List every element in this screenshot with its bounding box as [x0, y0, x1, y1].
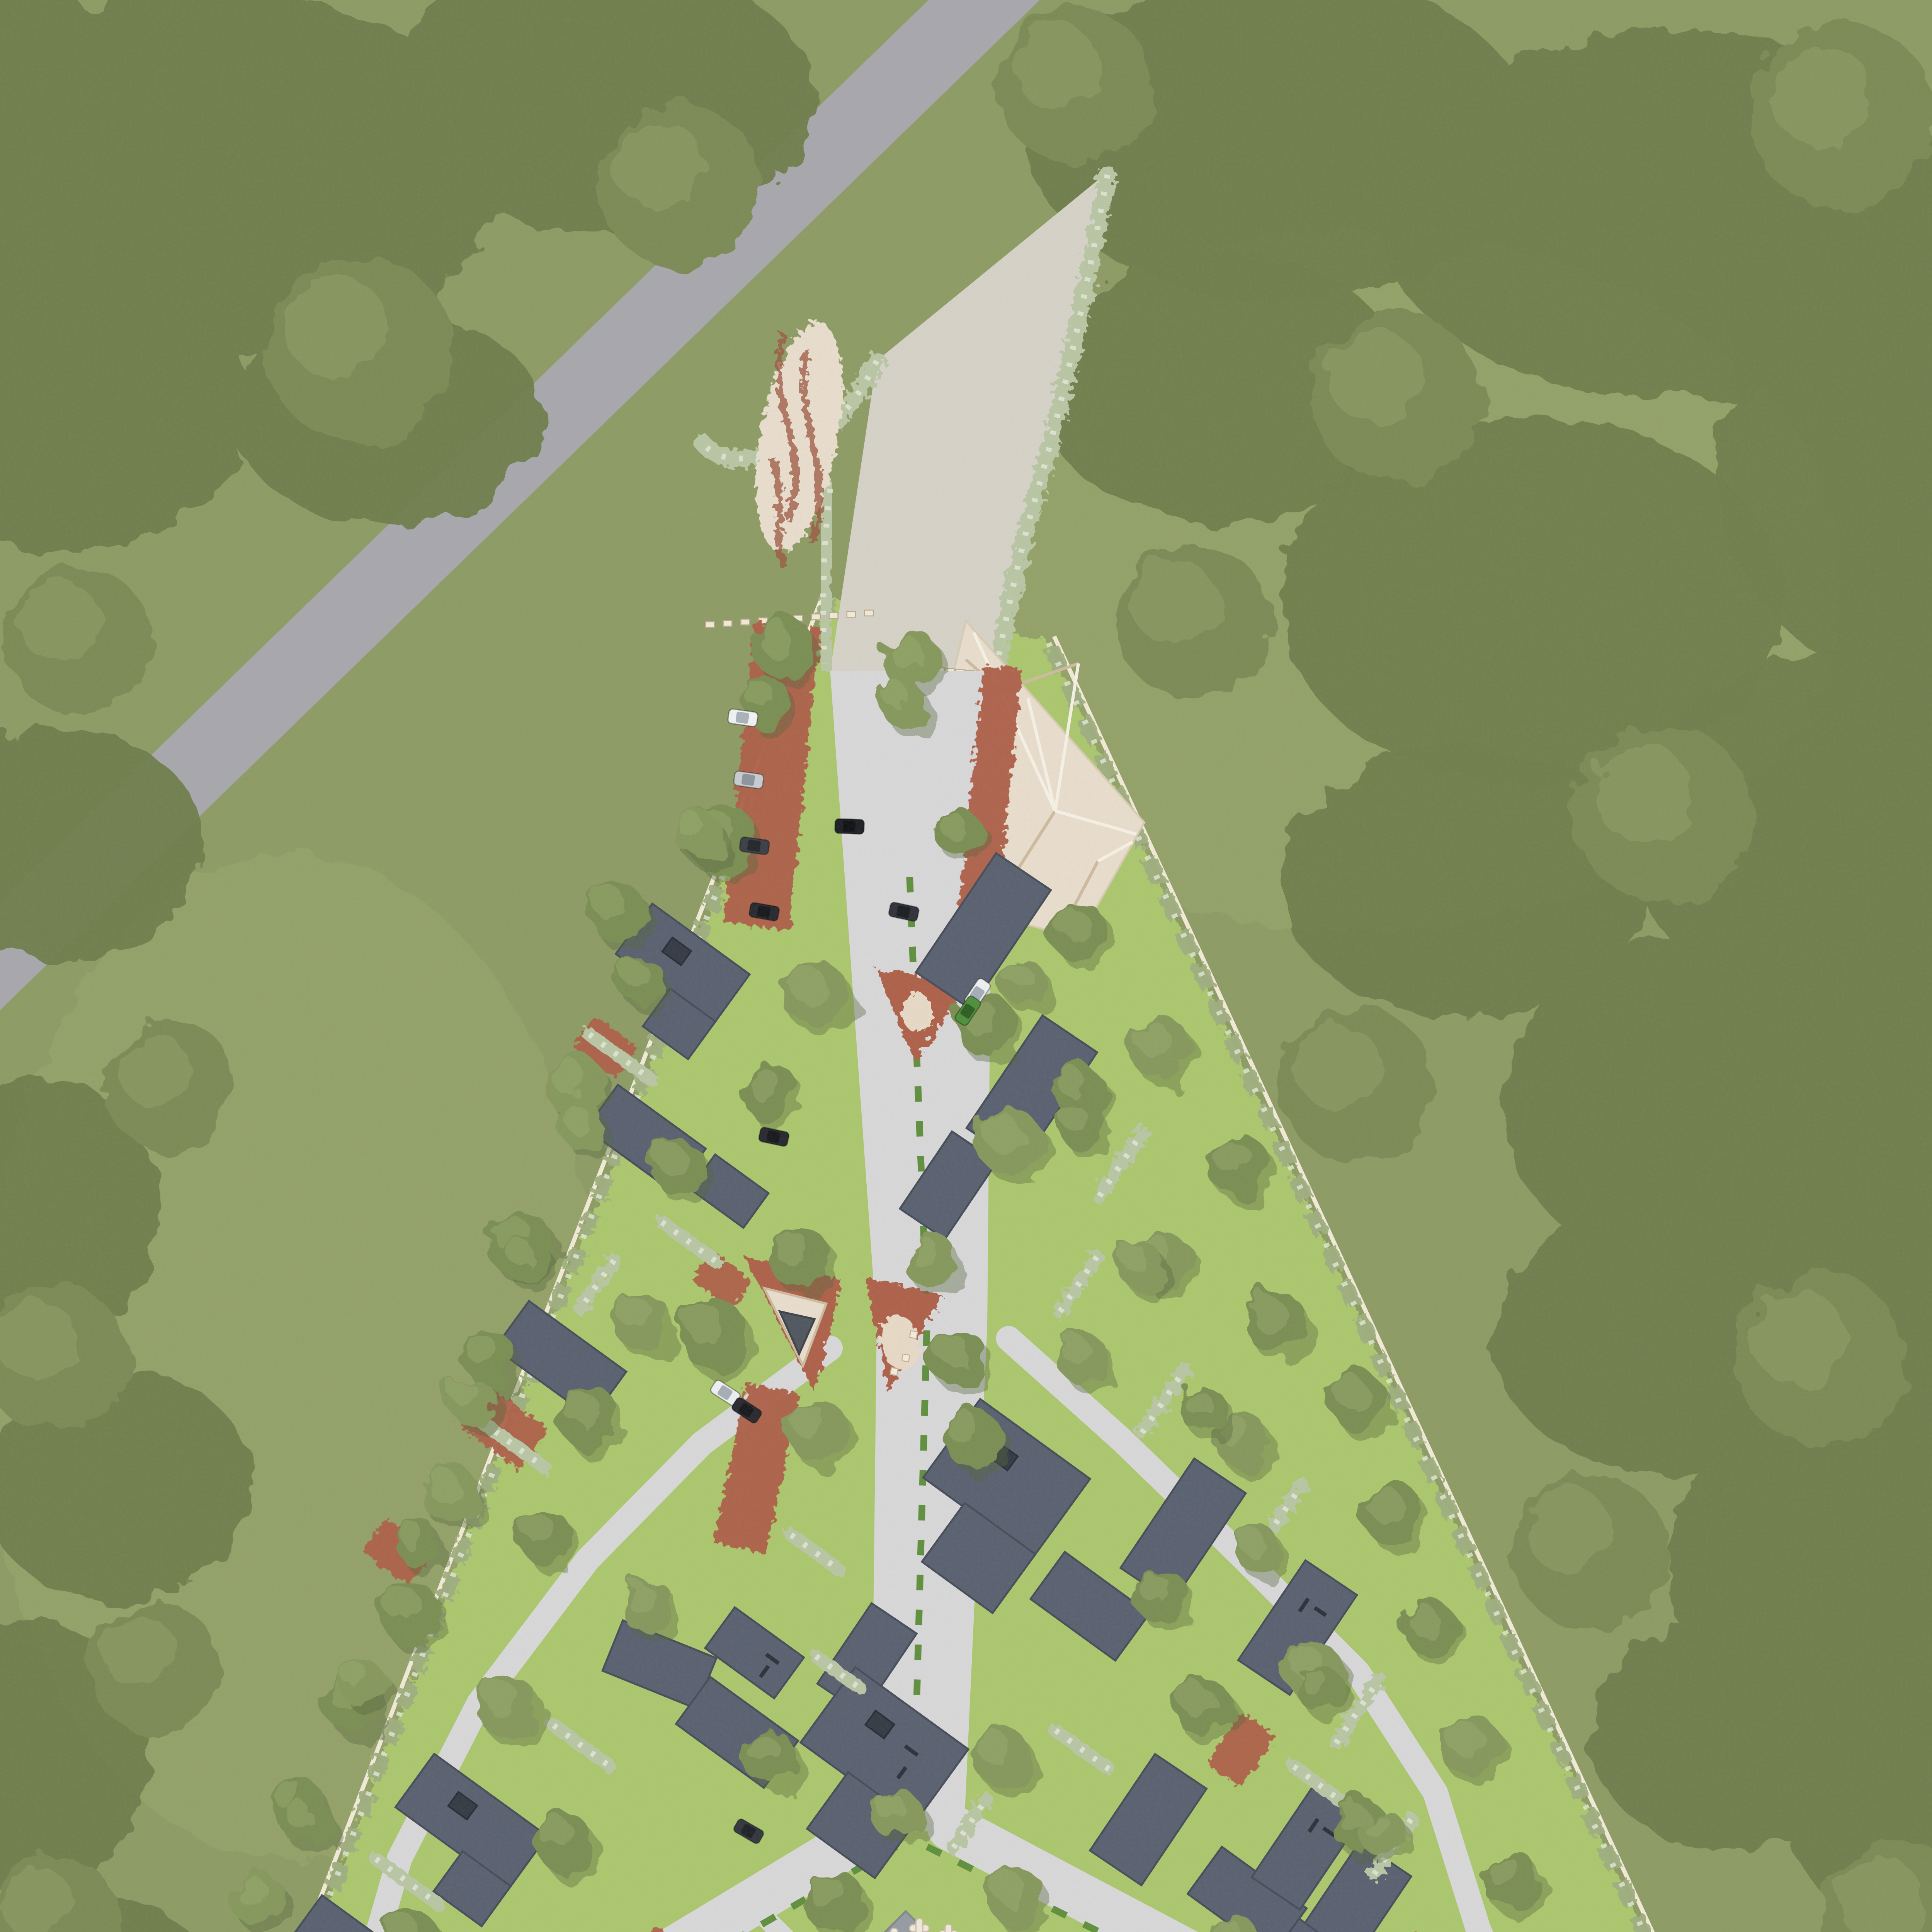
- grain-overlay: [0, 0, 1932, 1932]
- masterplan-canvas: Aerial masterplan rendering of a triangu…: [0, 0, 1932, 1932]
- photo-grain: [0, 0, 1932, 1932]
- masterplan-aerial-rendering: Aerial masterplan rendering of a triangu…: [0, 0, 1932, 1932]
